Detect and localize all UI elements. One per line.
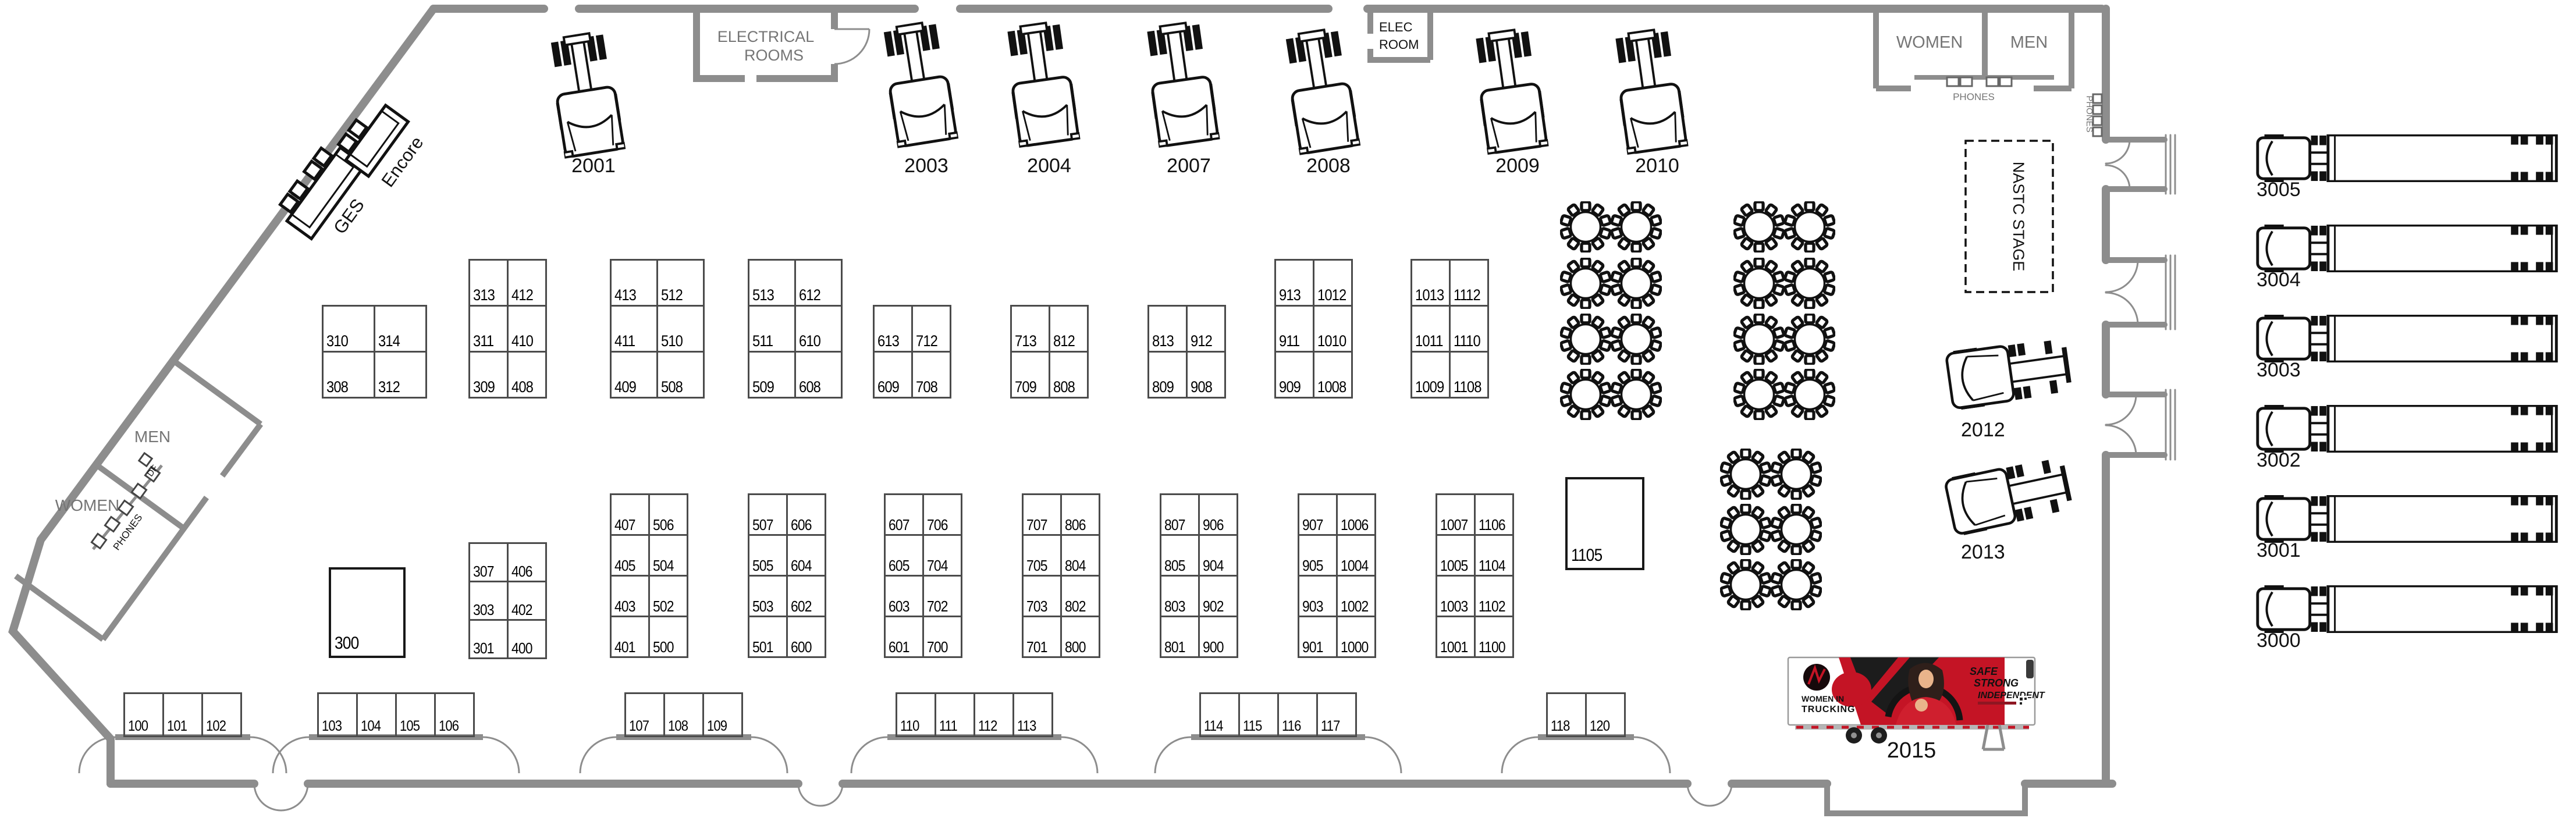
booth-908[interactable]: 908 bbox=[1186, 351, 1226, 399]
booth-804[interactable]: 804 bbox=[1060, 534, 1100, 577]
booth-number: 510 bbox=[661, 333, 683, 349]
booth-number: 307 bbox=[473, 564, 494, 579]
booth-107[interactable]: 107 bbox=[624, 692, 665, 737]
booth-number: 808 bbox=[1053, 379, 1075, 395]
booth-number: 806 bbox=[1065, 517, 1086, 532]
booth-number: 800 bbox=[1065, 639, 1086, 655]
booth-901[interactable]: 901 bbox=[1298, 616, 1338, 658]
booth-number: 1000 bbox=[1341, 639, 1368, 655]
booth-701[interactable]: 701 bbox=[1022, 616, 1062, 658]
booth-104[interactable]: 104 bbox=[356, 692, 397, 737]
booth-number: 909 bbox=[1279, 379, 1301, 395]
booth-number: 1004 bbox=[1341, 558, 1368, 573]
booth-number: 113 bbox=[1017, 719, 1036, 734]
booth-700[interactable]: 700 bbox=[922, 616, 962, 658]
booth-912[interactable]: 912 bbox=[1186, 305, 1226, 353]
booth-number: 116 bbox=[1282, 719, 1301, 734]
booth-405[interactable]: 405 bbox=[610, 534, 650, 577]
booth-310[interactable]: 310 bbox=[322, 305, 375, 353]
booth-704[interactable]: 704 bbox=[922, 534, 962, 577]
booth-number: 600 bbox=[791, 639, 812, 655]
booth-number: 310 bbox=[326, 333, 348, 349]
booth-number: 107 bbox=[629, 719, 649, 734]
booth-913[interactable]: 913 bbox=[1274, 259, 1314, 307]
booth-712[interactable]: 712 bbox=[911, 305, 951, 353]
booth-311[interactable]: 311 bbox=[468, 305, 509, 353]
booth-number: 1112 bbox=[1454, 287, 1480, 303]
booth-number: 706 bbox=[927, 517, 948, 532]
booth-number: 1108 bbox=[1454, 379, 1481, 395]
booth-1104[interactable]: 1104 bbox=[1474, 534, 1514, 577]
booth-number: 907 bbox=[1302, 517, 1323, 532]
booth-602[interactable]: 602 bbox=[786, 575, 826, 617]
booth-number: 904 bbox=[1203, 558, 1224, 573]
booth-507[interactable]: 507 bbox=[748, 493, 788, 536]
booth-number: 303 bbox=[473, 602, 494, 617]
booth-503[interactable]: 503 bbox=[748, 575, 788, 617]
booth-909[interactable]: 909 bbox=[1274, 351, 1314, 399]
booth-number: 913 bbox=[1279, 287, 1301, 303]
booth-115[interactable]: 115 bbox=[1238, 692, 1279, 737]
booth-number: 100 bbox=[128, 719, 148, 734]
booth-900[interactable]: 900 bbox=[1198, 616, 1238, 658]
booth-1106[interactable]: 1106 bbox=[1474, 493, 1514, 536]
booth-number: 908 bbox=[1191, 379, 1212, 395]
booth-313[interactable]: 313 bbox=[468, 259, 509, 307]
booth-309[interactable]: 309 bbox=[468, 351, 509, 399]
booth-number: 105 bbox=[400, 719, 420, 734]
booth-110[interactable]: 110 bbox=[896, 692, 936, 737]
booth-108[interactable]: 108 bbox=[663, 692, 704, 737]
booth-number: 109 bbox=[707, 719, 727, 734]
booth-1110[interactable]: 1110 bbox=[1449, 305, 1489, 353]
booth-105[interactable]: 105 bbox=[395, 692, 436, 737]
floor-plan: ELECTRICAL ROOMS ELEC ROOM WOMEN MEN PHO… bbox=[0, 0, 2576, 818]
booth-1001[interactable]: 1001 bbox=[1436, 616, 1476, 658]
booth-number: 1010 bbox=[1317, 333, 1346, 349]
booth-number: 703 bbox=[1026, 599, 1047, 614]
booth-610[interactable]: 610 bbox=[794, 305, 843, 353]
booth-number: 1011 bbox=[1415, 333, 1443, 349]
booth-number: 405 bbox=[614, 558, 635, 573]
booth-number: 504 bbox=[653, 558, 674, 573]
booth-410[interactable]: 410 bbox=[507, 305, 547, 353]
booth-number: 309 bbox=[473, 379, 495, 395]
booth-607[interactable]: 607 bbox=[884, 493, 924, 536]
booth-409[interactable]: 409 bbox=[610, 351, 658, 399]
booth-512[interactable]: 512 bbox=[656, 259, 705, 307]
booth-number: 708 bbox=[916, 379, 937, 395]
booth-605[interactable]: 605 bbox=[884, 534, 924, 577]
booth-number: 809 bbox=[1152, 379, 1174, 395]
booth-1003[interactable]: 1003 bbox=[1436, 575, 1476, 617]
booth-1000[interactable]: 1000 bbox=[1336, 616, 1376, 658]
booth-number: 1009 bbox=[1415, 379, 1444, 395]
booth-number: 101 bbox=[167, 719, 187, 734]
booth-number: 413 bbox=[614, 287, 636, 303]
booth-number: 604 bbox=[791, 558, 812, 573]
booth-612[interactable]: 612 bbox=[794, 259, 843, 307]
booth-number: 118 bbox=[1551, 719, 1569, 734]
booth-number: 506 bbox=[653, 517, 674, 532]
booth-805[interactable]: 805 bbox=[1160, 534, 1200, 577]
booth-112[interactable]: 112 bbox=[973, 692, 1014, 737]
booth-number: 505 bbox=[752, 558, 773, 573]
booth-509[interactable]: 509 bbox=[748, 351, 796, 399]
booth-1002[interactable]: 1002 bbox=[1336, 575, 1376, 617]
booth-number: 906 bbox=[1203, 517, 1224, 532]
booth-1011[interactable]: 1011 bbox=[1410, 305, 1451, 353]
booth-1012[interactable]: 1012 bbox=[1313, 259, 1353, 307]
booth-number: 801 bbox=[1164, 639, 1185, 655]
booth-number: 502 bbox=[653, 599, 674, 614]
booth-number: 1006 bbox=[1341, 517, 1368, 532]
booth-601[interactable]: 601 bbox=[884, 616, 924, 658]
booth-609[interactable]: 609 bbox=[873, 351, 913, 399]
booth-number: 312 bbox=[378, 379, 400, 395]
booth-113[interactable]: 113 bbox=[1012, 692, 1053, 737]
booth-501[interactable]: 501 bbox=[748, 616, 788, 658]
booth-408[interactable]: 408 bbox=[507, 351, 547, 399]
booth-number: 403 bbox=[614, 599, 635, 614]
booth-number: 311 bbox=[473, 333, 493, 349]
booth-number: 408 bbox=[511, 379, 533, 395]
booth-number: 903 bbox=[1302, 599, 1323, 614]
booth-708[interactable]: 708 bbox=[911, 351, 951, 399]
booth-number: 104 bbox=[361, 719, 381, 734]
booth-number: 110 bbox=[900, 719, 919, 734]
booth-406[interactable]: 406 bbox=[507, 542, 547, 582]
booth-number: 115 bbox=[1243, 719, 1262, 734]
booth-303[interactable]: 303 bbox=[468, 581, 509, 621]
booth-412[interactable]: 412 bbox=[507, 259, 547, 307]
booth-1007[interactable]: 1007 bbox=[1436, 493, 1476, 536]
booth-number: 409 bbox=[614, 379, 636, 395]
booth-506[interactable]: 506 bbox=[648, 493, 688, 536]
booth-number: 1001 bbox=[1440, 639, 1468, 655]
booth-number: 1007 bbox=[1440, 517, 1468, 532]
booth-907[interactable]: 907 bbox=[1298, 493, 1338, 536]
booth-813[interactable]: 813 bbox=[1147, 305, 1188, 353]
booth-400[interactable]: 400 bbox=[507, 619, 547, 659]
booth-number: 709 bbox=[1015, 379, 1036, 395]
booth-number: 511 bbox=[752, 333, 773, 349]
booth-layer: 3103143083123134123114103094084135124115… bbox=[0, 0, 2576, 818]
booth-number: 911 bbox=[1279, 333, 1299, 349]
booth-number: 313 bbox=[473, 287, 495, 303]
booth-606[interactable]: 606 bbox=[786, 493, 826, 536]
booth-511[interactable]: 511 bbox=[748, 305, 796, 353]
booth-109[interactable]: 109 bbox=[702, 692, 743, 737]
booth-number: 508 bbox=[661, 379, 683, 395]
booth-903[interactable]: 903 bbox=[1298, 575, 1338, 617]
booth-number: 905 bbox=[1302, 558, 1323, 573]
booth-101[interactable]: 101 bbox=[162, 692, 203, 737]
booth-number: 802 bbox=[1065, 599, 1086, 614]
booth-number: 902 bbox=[1203, 599, 1224, 614]
booth-705[interactable]: 705 bbox=[1022, 534, 1062, 577]
booth-number: 1100 bbox=[1479, 639, 1505, 655]
booth-803[interactable]: 803 bbox=[1160, 575, 1200, 617]
booth-number: 1110 bbox=[1454, 333, 1480, 349]
booth-808[interactable]: 808 bbox=[1049, 351, 1089, 399]
booth-number: 705 bbox=[1026, 558, 1047, 573]
booth-number: 112 bbox=[978, 719, 997, 734]
booth-number: 612 bbox=[799, 287, 820, 303]
booth-508[interactable]: 508 bbox=[656, 351, 705, 399]
booth-806[interactable]: 806 bbox=[1060, 493, 1100, 536]
booth-413[interactable]: 413 bbox=[610, 259, 658, 307]
booth-1009[interactable]: 1009 bbox=[1410, 351, 1451, 399]
booth-807[interactable]: 807 bbox=[1160, 493, 1200, 536]
booth-505[interactable]: 505 bbox=[748, 534, 788, 577]
booth-106[interactable]: 106 bbox=[434, 692, 475, 737]
booth-117[interactable]: 117 bbox=[1316, 692, 1357, 737]
booth-number: 1008 bbox=[1317, 379, 1346, 395]
booth-608[interactable]: 608 bbox=[794, 351, 843, 399]
booth-number: 805 bbox=[1164, 558, 1185, 573]
booth-number: 501 bbox=[752, 639, 773, 655]
booth-502[interactable]: 502 bbox=[648, 575, 688, 617]
booth-number: 412 bbox=[511, 287, 533, 303]
booth-number: 410 bbox=[511, 333, 533, 349]
booth-number: 700 bbox=[927, 639, 948, 655]
booth-number: 411 bbox=[614, 333, 635, 349]
booth-604[interactable]: 604 bbox=[786, 534, 826, 577]
booth-number: 402 bbox=[511, 602, 532, 617]
booth-number: 513 bbox=[752, 287, 774, 303]
booth-number: 1012 bbox=[1317, 287, 1346, 303]
booth-702[interactable]: 702 bbox=[922, 575, 962, 617]
booth-500[interactable]: 500 bbox=[648, 616, 688, 658]
booth-number: 704 bbox=[927, 558, 948, 573]
booth-403[interactable]: 403 bbox=[610, 575, 650, 617]
booth-number: 607 bbox=[889, 517, 909, 532]
booth-number: 701 bbox=[1026, 639, 1047, 655]
booth-301[interactable]: 301 bbox=[468, 619, 509, 659]
booth-number: 1013 bbox=[1415, 287, 1444, 303]
booth-number: 1106 bbox=[1479, 517, 1505, 532]
booth-100[interactable]: 100 bbox=[123, 692, 164, 737]
booth-1005[interactable]: 1005 bbox=[1436, 534, 1476, 577]
booth-713[interactable]: 713 bbox=[1010, 305, 1050, 353]
booth-number: 601 bbox=[889, 639, 909, 655]
booth-114[interactable]: 114 bbox=[1199, 692, 1240, 737]
booth-number: 300 bbox=[335, 634, 358, 653]
booth-111[interactable]: 111 bbox=[935, 692, 975, 737]
booth-308[interactable]: 308 bbox=[322, 351, 375, 399]
booth-905[interactable]: 905 bbox=[1298, 534, 1338, 577]
booth-1013[interactable]: 1013 bbox=[1410, 259, 1451, 307]
booth-809[interactable]: 809 bbox=[1147, 351, 1188, 399]
booth-510[interactable]: 510 bbox=[656, 305, 705, 353]
booth-911[interactable]: 911 bbox=[1274, 305, 1314, 353]
booth-902[interactable]: 902 bbox=[1198, 575, 1238, 617]
booth-number: 610 bbox=[799, 333, 820, 349]
booth-number: 301 bbox=[473, 641, 494, 656]
booth-number: 912 bbox=[1191, 333, 1212, 349]
booth-number: 812 bbox=[1053, 333, 1075, 349]
booth-number: 1102 bbox=[1479, 599, 1505, 614]
booth-312[interactable]: 312 bbox=[374, 351, 427, 399]
booth-1100[interactable]: 1100 bbox=[1474, 616, 1514, 658]
booth-1006[interactable]: 1006 bbox=[1336, 493, 1376, 536]
booth-number: 702 bbox=[927, 599, 948, 614]
booth-812[interactable]: 812 bbox=[1049, 305, 1089, 353]
booth-number: 114 bbox=[1204, 719, 1223, 734]
booth-number: 400 bbox=[511, 641, 532, 656]
booth-1112[interactable]: 1112 bbox=[1449, 259, 1489, 307]
booth-703[interactable]: 703 bbox=[1022, 575, 1062, 617]
booth-number: 102 bbox=[206, 719, 226, 734]
booth-407[interactable]: 407 bbox=[610, 493, 650, 536]
booth-number: 712 bbox=[916, 333, 937, 349]
booth-number: 603 bbox=[889, 599, 909, 614]
booth-number: 103 bbox=[322, 719, 342, 734]
booth-707[interactable]: 707 bbox=[1022, 493, 1062, 536]
booth-number: 713 bbox=[1015, 333, 1036, 349]
booth-number: 111 bbox=[939, 719, 957, 734]
booth-number: 509 bbox=[752, 379, 774, 395]
booth-number: 406 bbox=[511, 564, 532, 579]
booth-1008[interactable]: 1008 bbox=[1313, 351, 1353, 399]
booth-800[interactable]: 800 bbox=[1060, 616, 1100, 658]
booth-number: 106 bbox=[439, 719, 459, 734]
booth-number: 507 bbox=[752, 517, 773, 532]
booth-number: 1002 bbox=[1341, 599, 1368, 614]
booth-706[interactable]: 706 bbox=[922, 493, 962, 536]
booth-number: 1104 bbox=[1479, 558, 1505, 573]
booth-number: 1005 bbox=[1440, 558, 1468, 573]
booth-number: 609 bbox=[877, 379, 899, 395]
booth-513[interactable]: 513 bbox=[748, 259, 796, 307]
booth-number: 314 bbox=[378, 333, 400, 349]
booth-number: 804 bbox=[1065, 558, 1086, 573]
booth-402[interactable]: 402 bbox=[507, 581, 547, 621]
booth-307[interactable]: 307 bbox=[468, 542, 509, 582]
booth-number: 1003 bbox=[1440, 599, 1468, 614]
booth-number: 503 bbox=[752, 599, 773, 614]
booth-number: 606 bbox=[791, 517, 812, 532]
booth-number: 803 bbox=[1164, 599, 1185, 614]
booth-number: 613 bbox=[877, 333, 899, 349]
booth-603[interactable]: 603 bbox=[884, 575, 924, 617]
booth-411[interactable]: 411 bbox=[610, 305, 658, 353]
booth-1102[interactable]: 1102 bbox=[1474, 575, 1514, 617]
booth-number: 813 bbox=[1152, 333, 1174, 349]
booth-number: 901 bbox=[1302, 639, 1323, 655]
booth-118[interactable]: 118 bbox=[1546, 692, 1587, 737]
booth-number: 500 bbox=[653, 639, 674, 655]
booth-number: 308 bbox=[326, 379, 348, 395]
booth-number: 807 bbox=[1164, 517, 1185, 532]
booth-904[interactable]: 904 bbox=[1198, 534, 1238, 577]
booth-300[interactable]: 300 bbox=[329, 567, 406, 658]
booth-600[interactable]: 600 bbox=[786, 616, 826, 658]
booth-709[interactable]: 709 bbox=[1010, 351, 1050, 399]
booth-802[interactable]: 802 bbox=[1060, 575, 1100, 617]
booth-number: 120 bbox=[1590, 719, 1609, 734]
booth-number: 108 bbox=[668, 719, 688, 734]
booth-number: 407 bbox=[614, 517, 635, 532]
booth-116[interactable]: 116 bbox=[1277, 692, 1318, 737]
booth-102[interactable]: 102 bbox=[201, 692, 242, 737]
booth-1010[interactable]: 1010 bbox=[1313, 305, 1353, 353]
booth-number: 1105 bbox=[1571, 546, 1602, 566]
booth-103[interactable]: 103 bbox=[317, 692, 358, 737]
booth-1108[interactable]: 1108 bbox=[1449, 351, 1489, 399]
booth-906[interactable]: 906 bbox=[1198, 493, 1238, 536]
booth-number: 900 bbox=[1203, 639, 1224, 655]
booth-504[interactable]: 504 bbox=[648, 534, 688, 577]
booth-number: 117 bbox=[1321, 719, 1339, 734]
booth-number: 602 bbox=[791, 599, 812, 614]
booth-number: 608 bbox=[799, 379, 820, 395]
booth-number: 707 bbox=[1026, 517, 1047, 532]
booth-120[interactable]: 120 bbox=[1585, 692, 1626, 737]
booth-613[interactable]: 613 bbox=[873, 305, 913, 353]
booth-314[interactable]: 314 bbox=[374, 305, 427, 353]
booth-number: 401 bbox=[614, 639, 635, 655]
booth-number: 605 bbox=[889, 558, 909, 573]
booth-1004[interactable]: 1004 bbox=[1336, 534, 1376, 577]
booth-801[interactable]: 801 bbox=[1160, 616, 1200, 658]
booth-number: 512 bbox=[661, 287, 683, 303]
booth-401[interactable]: 401 bbox=[610, 616, 650, 658]
booth-1105[interactable]: 1105 bbox=[1565, 477, 1644, 570]
